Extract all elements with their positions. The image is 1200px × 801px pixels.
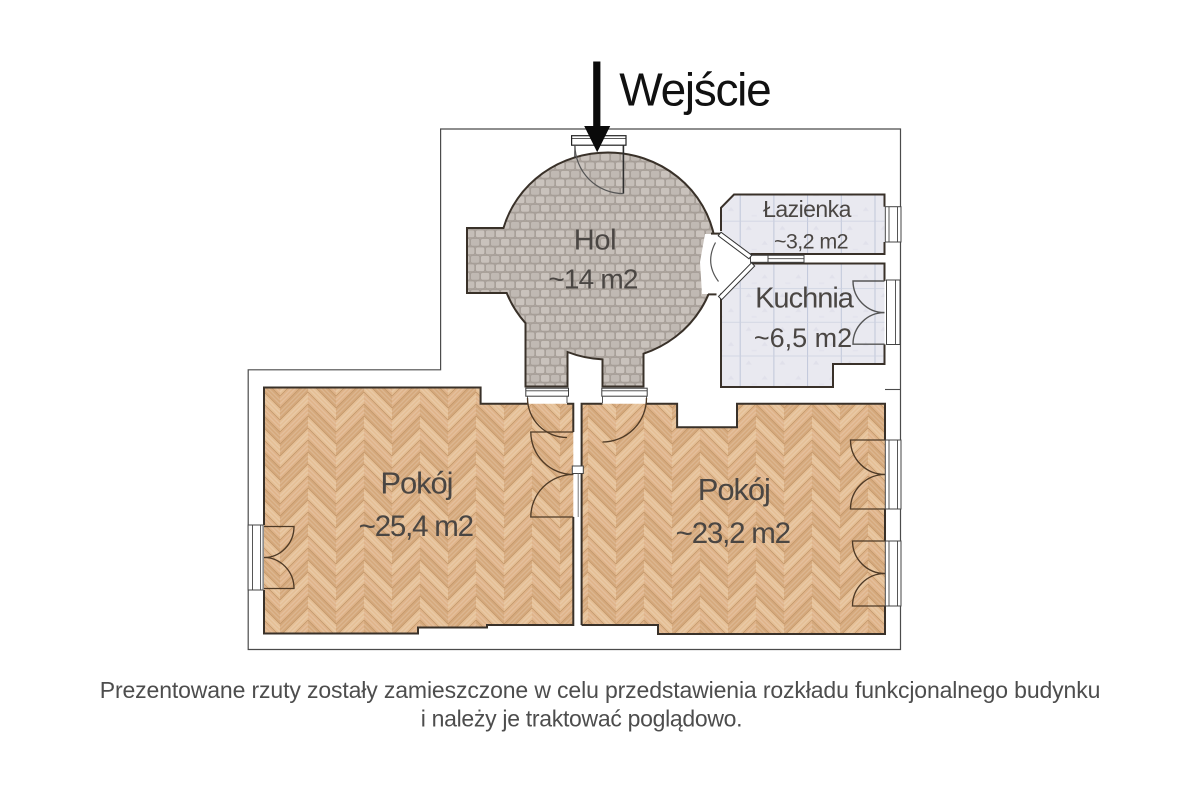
svg-text:Kuchnia: Kuchnia (755, 283, 855, 315)
svg-text:~23,2 m2: ~23,2 m2 (676, 517, 790, 550)
svg-text:Pokój: Pokój (380, 466, 452, 501)
svg-text:~6,5 m2: ~6,5 m2 (754, 323, 852, 353)
svg-text:Prezentowane rzuty zostały zam: Prezentowane rzuty zostały zamieszczone … (100, 677, 1100, 703)
svg-text:~25,4 m2: ~25,4 m2 (359, 510, 473, 543)
svg-text:Pokój: Pokój (698, 472, 770, 507)
svg-text:Hol: Hol (574, 225, 617, 257)
svg-text:i należy je traktować poglądow: i należy je traktować poglądowo. (421, 706, 743, 732)
svg-text:~3,2 m2: ~3,2 m2 (774, 230, 848, 254)
svg-text:Wejście: Wejście (619, 63, 770, 115)
svg-text:~14 m2: ~14 m2 (548, 264, 638, 295)
svg-text:Łazienka: Łazienka (763, 196, 851, 222)
